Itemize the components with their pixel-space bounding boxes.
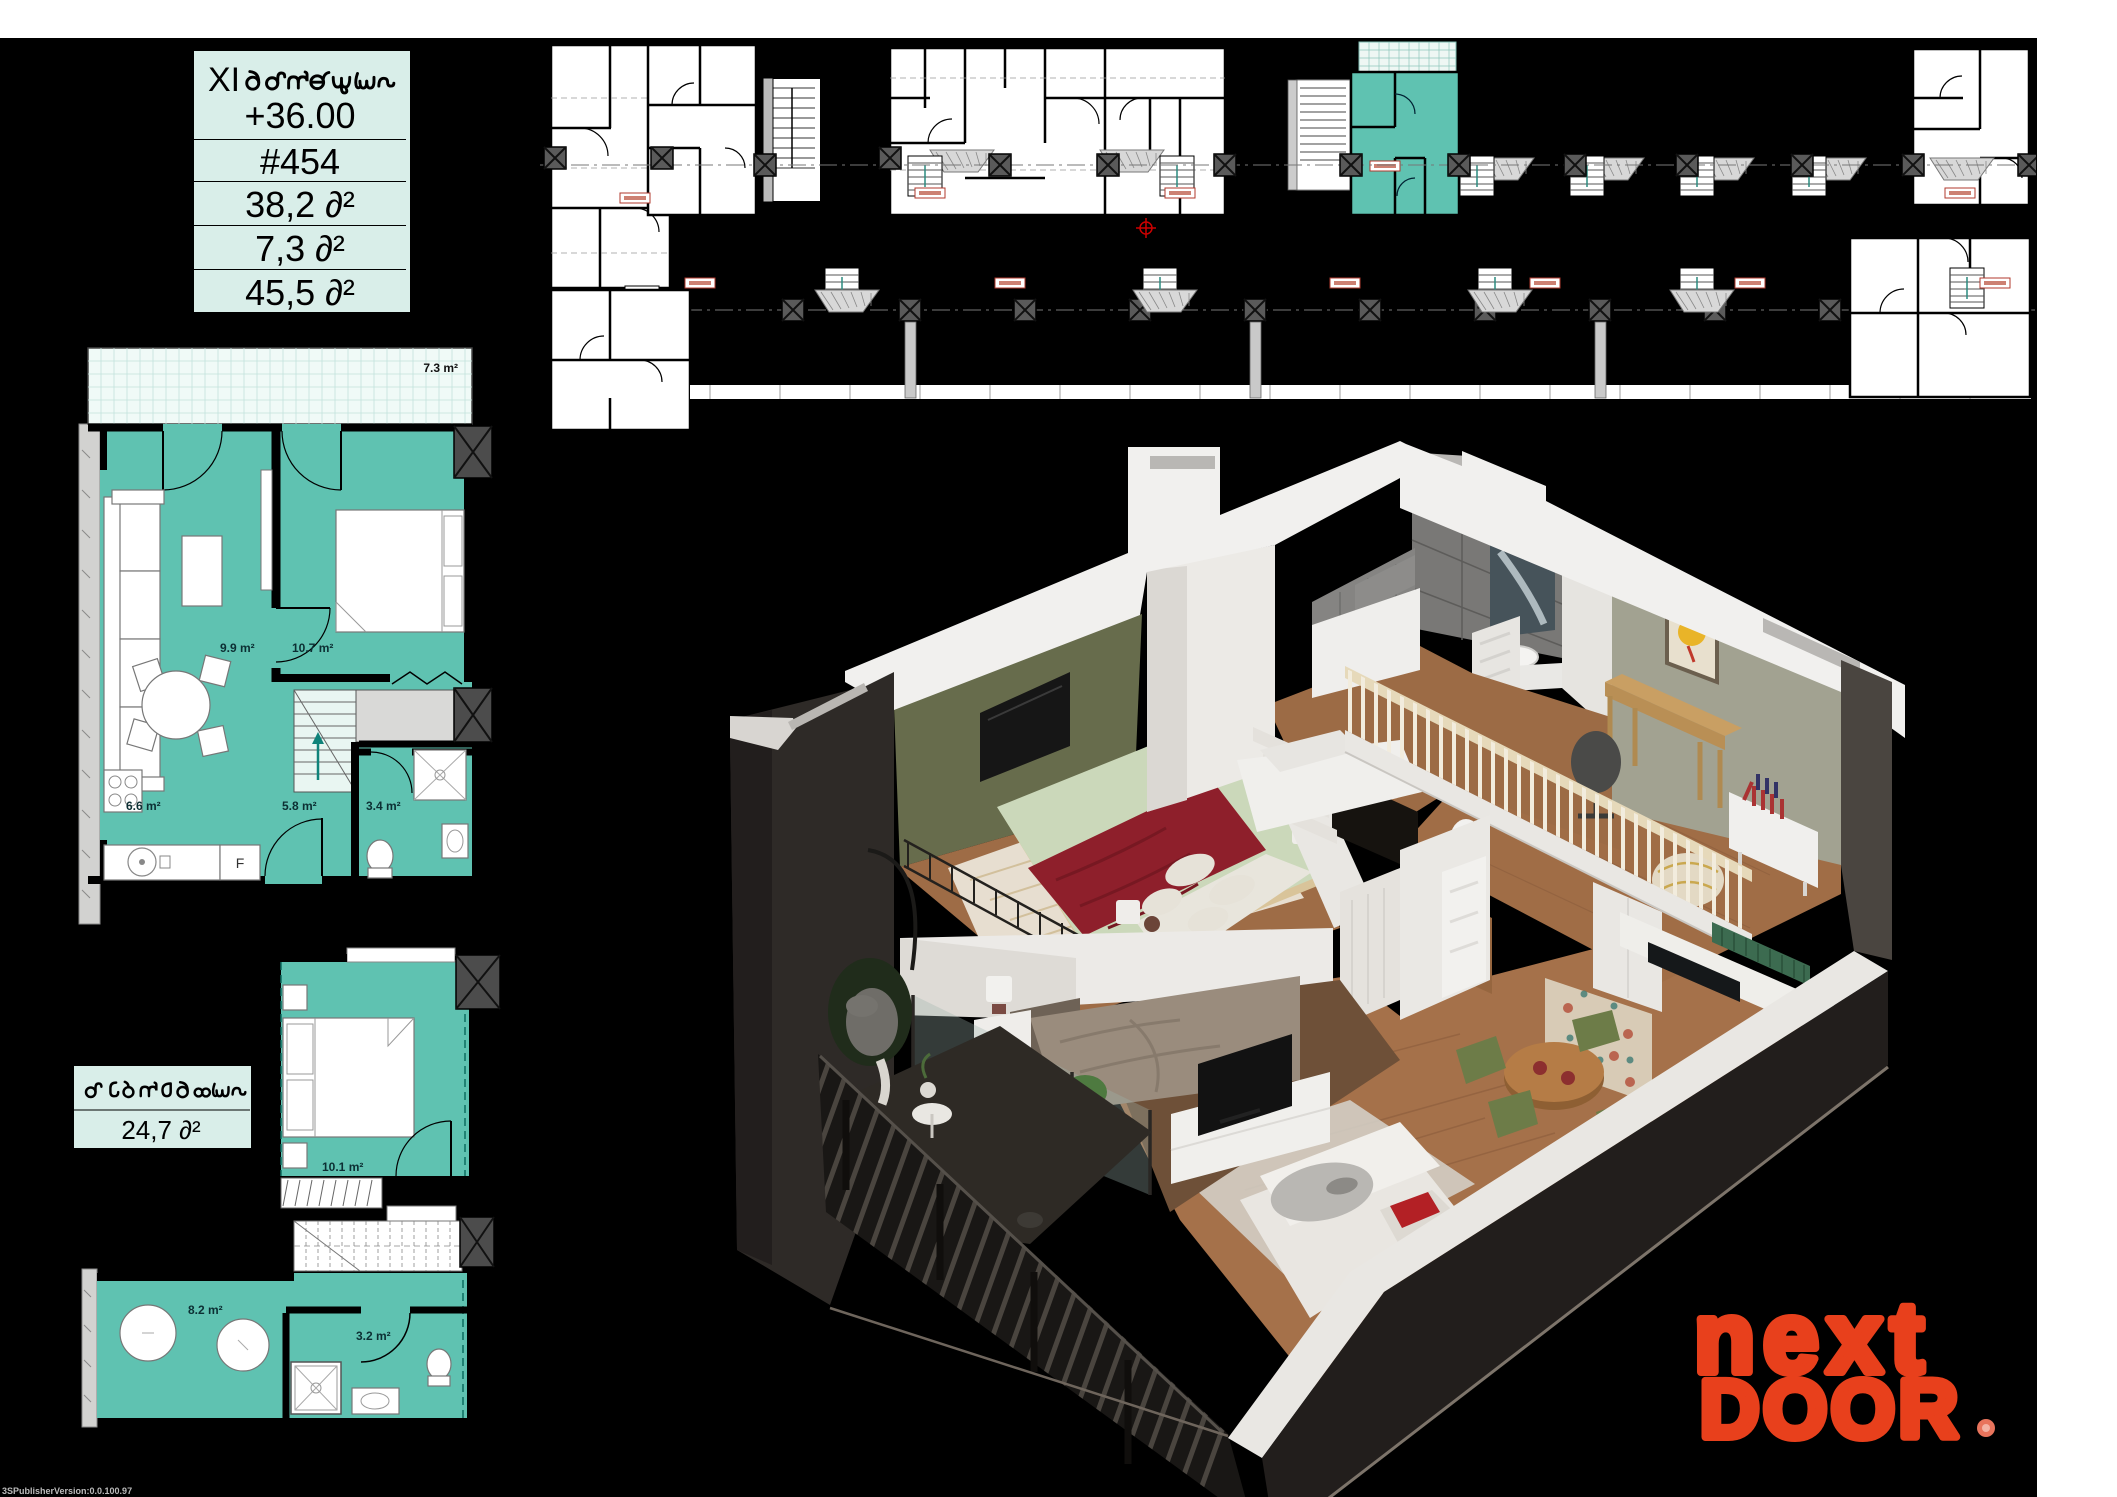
svg-text:6.6 m²: 6.6 m² [126,799,161,813]
svg-text:8.2 m²: 8.2 m² [188,1303,223,1317]
svg-text:5.8 m²: 5.8 m² [282,799,317,813]
svg-text:3.4 m²: 3.4 m² [366,799,401,813]
svg-text:3.2 m²: 3.2 m² [356,1329,391,1343]
svg-text:7.3 m²: 7.3 m² [423,361,458,375]
svg-text:10.7 m²: 10.7 m² [292,641,333,655]
svg-text:F: F [236,855,245,871]
svg-text:XI: XI [208,61,240,99]
svg-text:9.9 m²: 9.9 m² [220,641,255,655]
svg-text:+36.00: +36.00 [244,95,355,136]
svg-text:10.1 m²: 10.1 m² [322,1160,363,1174]
svg-text:DOOR: DOOR [1700,1364,1962,1455]
